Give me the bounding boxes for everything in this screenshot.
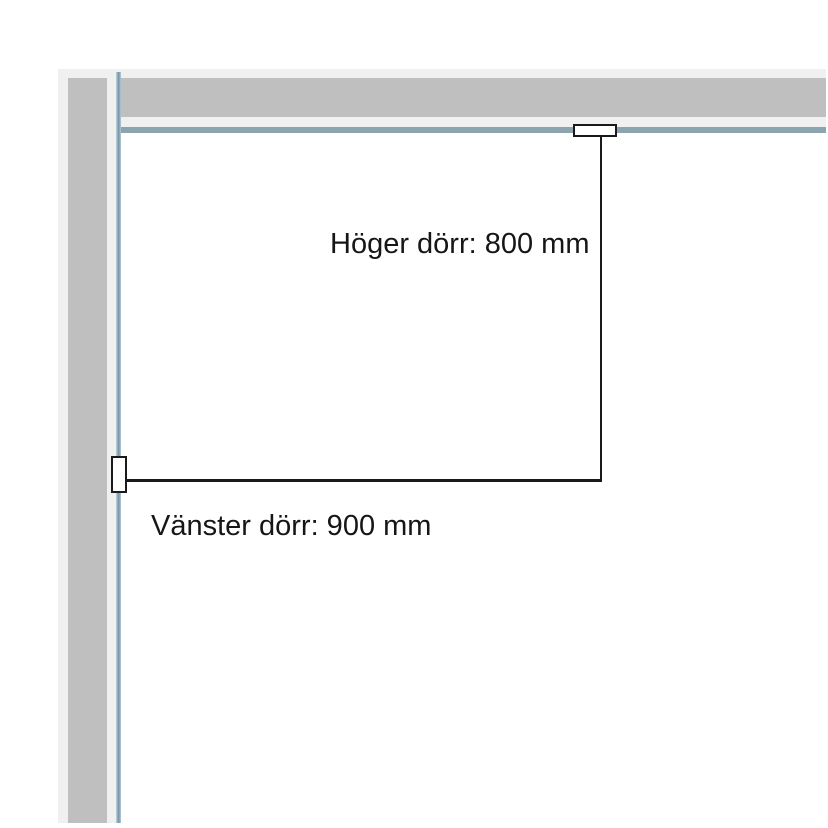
left-wall-outer-edge bbox=[58, 70, 68, 823]
left-door-handle[interactable] bbox=[111, 456, 127, 493]
top-wall-inner-edge bbox=[121, 117, 826, 127]
top-wall bbox=[121, 78, 826, 117]
left-wall-glass-rail bbox=[116, 72, 121, 823]
plan-canvas: Höger dörr: 800 mm Vänster dörr: 900 mm bbox=[0, 0, 828, 828]
top-wall-glass-rail bbox=[121, 127, 826, 133]
top-wall-outer-edge bbox=[58, 69, 826, 78]
left-door-measurement-label: Vänster dörr: 900 mm bbox=[151, 512, 431, 541]
right-door-handle[interactable] bbox=[573, 124, 617, 137]
left-wall-inner-edge bbox=[107, 78, 116, 823]
right-door-measurement-label: Höger dörr: 800 mm bbox=[330, 230, 590, 259]
left-door-dimension-line bbox=[127, 479, 602, 482]
right-door-dimension-line bbox=[600, 137, 602, 482]
left-wall bbox=[68, 78, 107, 823]
